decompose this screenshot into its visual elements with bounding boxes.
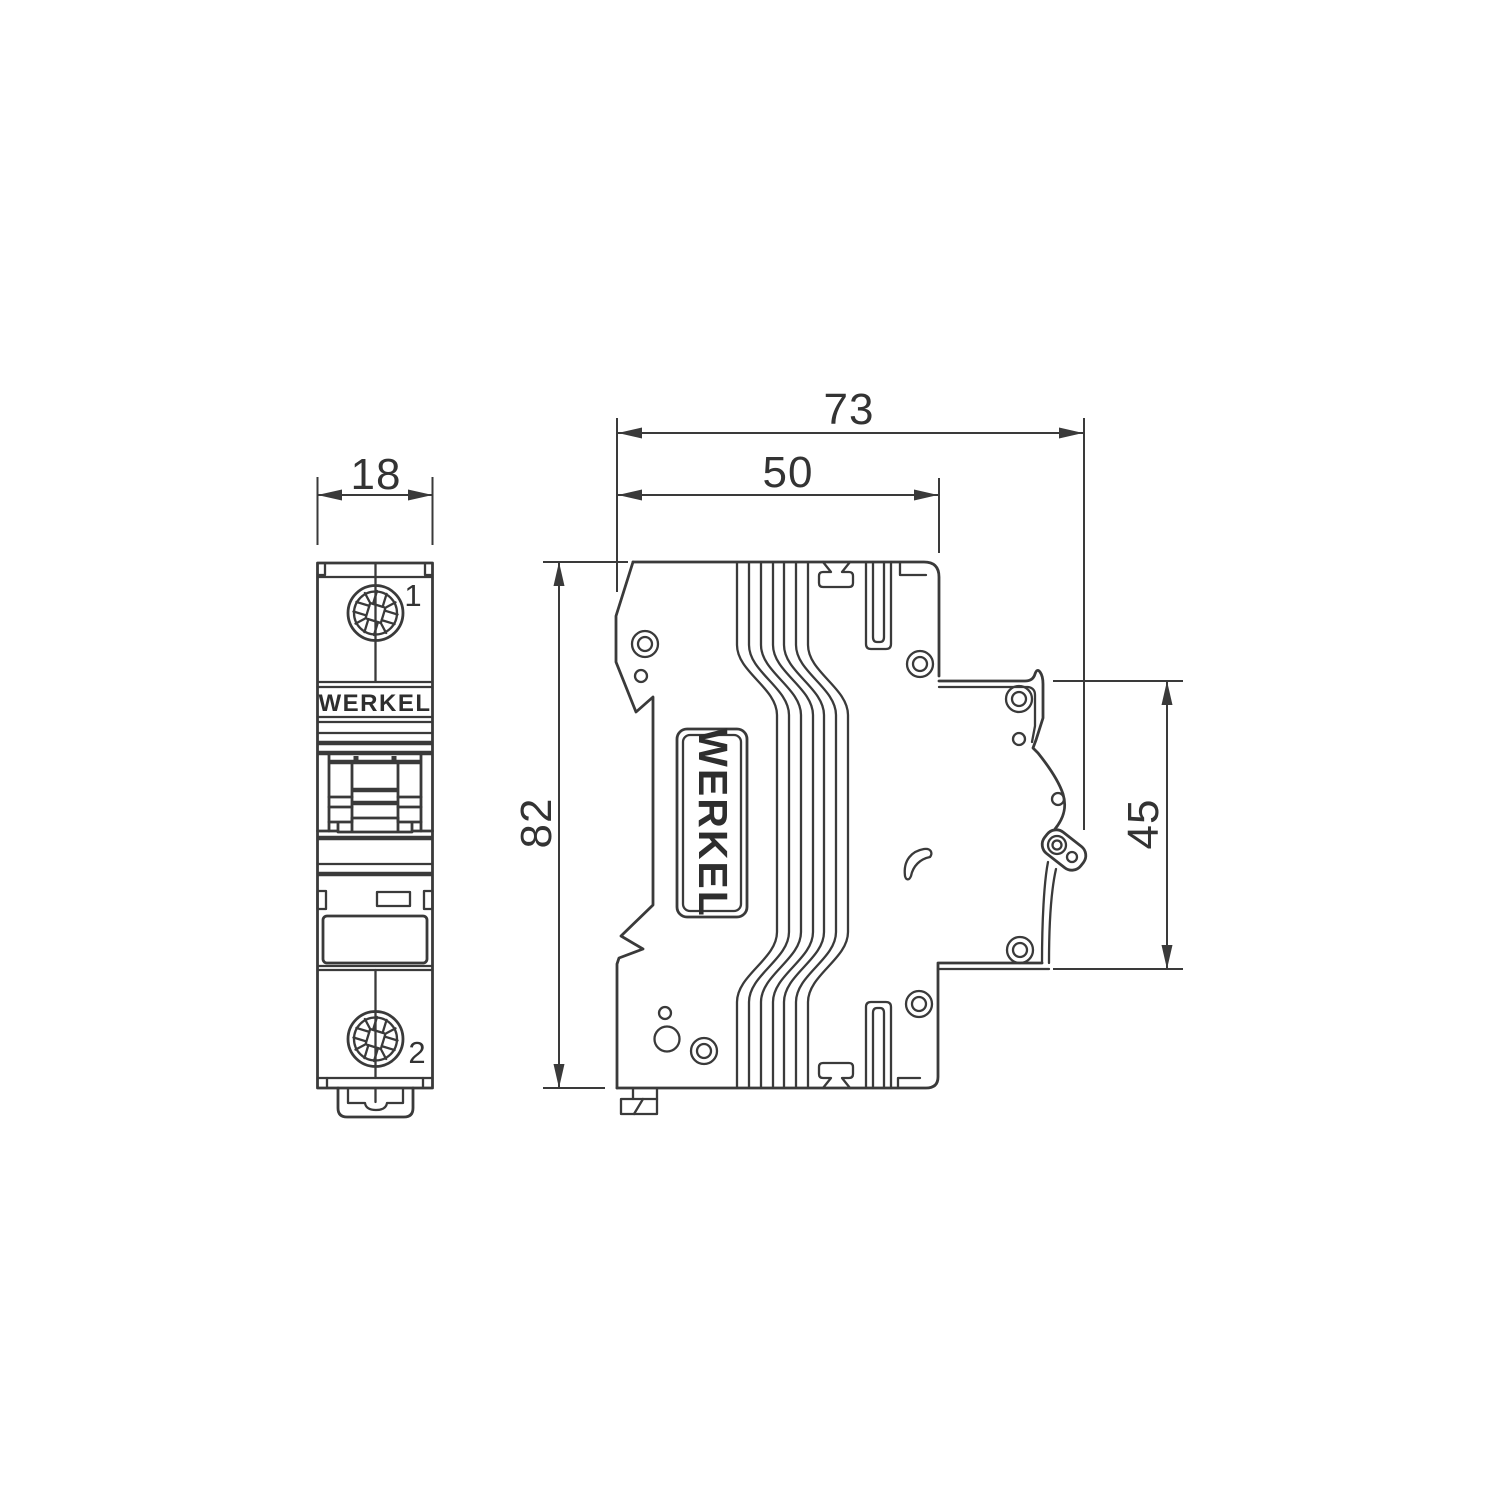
front-rating-band <box>318 838 433 874</box>
front-view <box>318 563 433 1117</box>
side-upper-step <box>939 670 1065 829</box>
side-din-tab <box>621 1088 657 1114</box>
side-ribs <box>737 562 848 1088</box>
side-view <box>616 562 1090 1114</box>
dimensions: 18 73 50 82 <box>318 385 1184 1088</box>
dim-73: 73 <box>617 385 1084 830</box>
dim-height-label: 82 <box>512 798 561 849</box>
side-crescent-mark <box>905 849 932 880</box>
side-dovetail-notch-bottom <box>819 1063 853 1088</box>
side-latch-lever <box>1038 825 1091 963</box>
dim-total-depth-label: 73 <box>824 385 875 434</box>
front-brand-label: WERKEL <box>319 690 432 717</box>
front-lower-panel <box>323 916 427 963</box>
technical-drawing-page: 18 73 50 82 <box>0 0 1500 1500</box>
side-slot-top <box>866 562 891 649</box>
terminal-1-label: 1 <box>404 578 421 613</box>
dim-body-depth-label: 50 <box>763 448 814 497</box>
side-left-profile <box>616 562 653 1088</box>
dim-18: 18 <box>318 450 433 545</box>
breaker-dimension-drawing: 18 73 50 82 <box>0 0 1500 1500</box>
side-dovetail-notch-top <box>819 562 853 587</box>
dim-82: 82 <box>512 562 628 1088</box>
dim-width-label: 18 <box>351 450 402 499</box>
side-slot-bottom <box>866 1002 891 1088</box>
side-top-corner-notch <box>900 562 926 575</box>
side-brand-label: WERKEL <box>690 728 736 918</box>
front-toggle-switch <box>318 753 433 832</box>
dim-rail-height-label: 45 <box>1119 799 1168 850</box>
terminal-2-label: 2 <box>408 1035 425 1070</box>
side-top-edge <box>633 562 939 676</box>
side-lower-step <box>617 963 1049 1088</box>
dim-45: 45 <box>1053 681 1183 969</box>
front-indicator-window <box>318 891 433 909</box>
dim-50: 50 <box>618 448 939 553</box>
front-bottom-strip <box>318 1078 433 1088</box>
